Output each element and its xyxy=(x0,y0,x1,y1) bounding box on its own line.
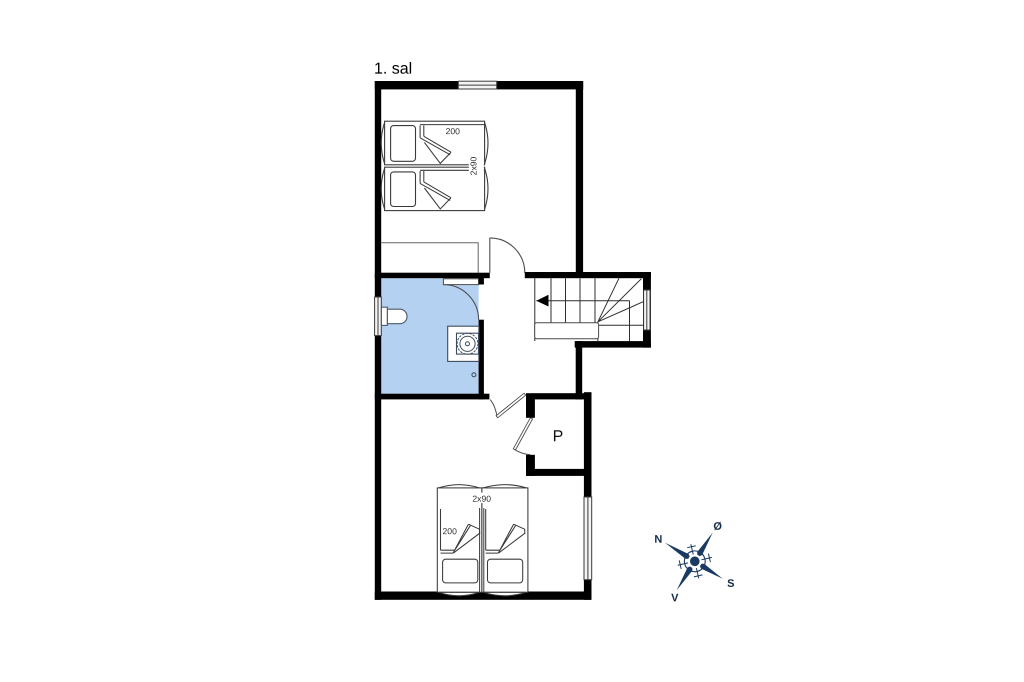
svg-text:2x90: 2x90 xyxy=(472,494,491,504)
svg-text:200: 200 xyxy=(446,126,461,136)
svg-text:1. sal: 1. sal xyxy=(374,61,412,78)
svg-text:P: P xyxy=(553,428,564,445)
svg-text:Ø: Ø xyxy=(713,521,722,533)
svg-text:V: V xyxy=(671,592,679,604)
svg-text:2x90: 2x90 xyxy=(468,156,478,175)
svg-text:200: 200 xyxy=(443,526,458,536)
svg-text:S: S xyxy=(727,578,734,590)
svg-text:N: N xyxy=(654,534,662,546)
